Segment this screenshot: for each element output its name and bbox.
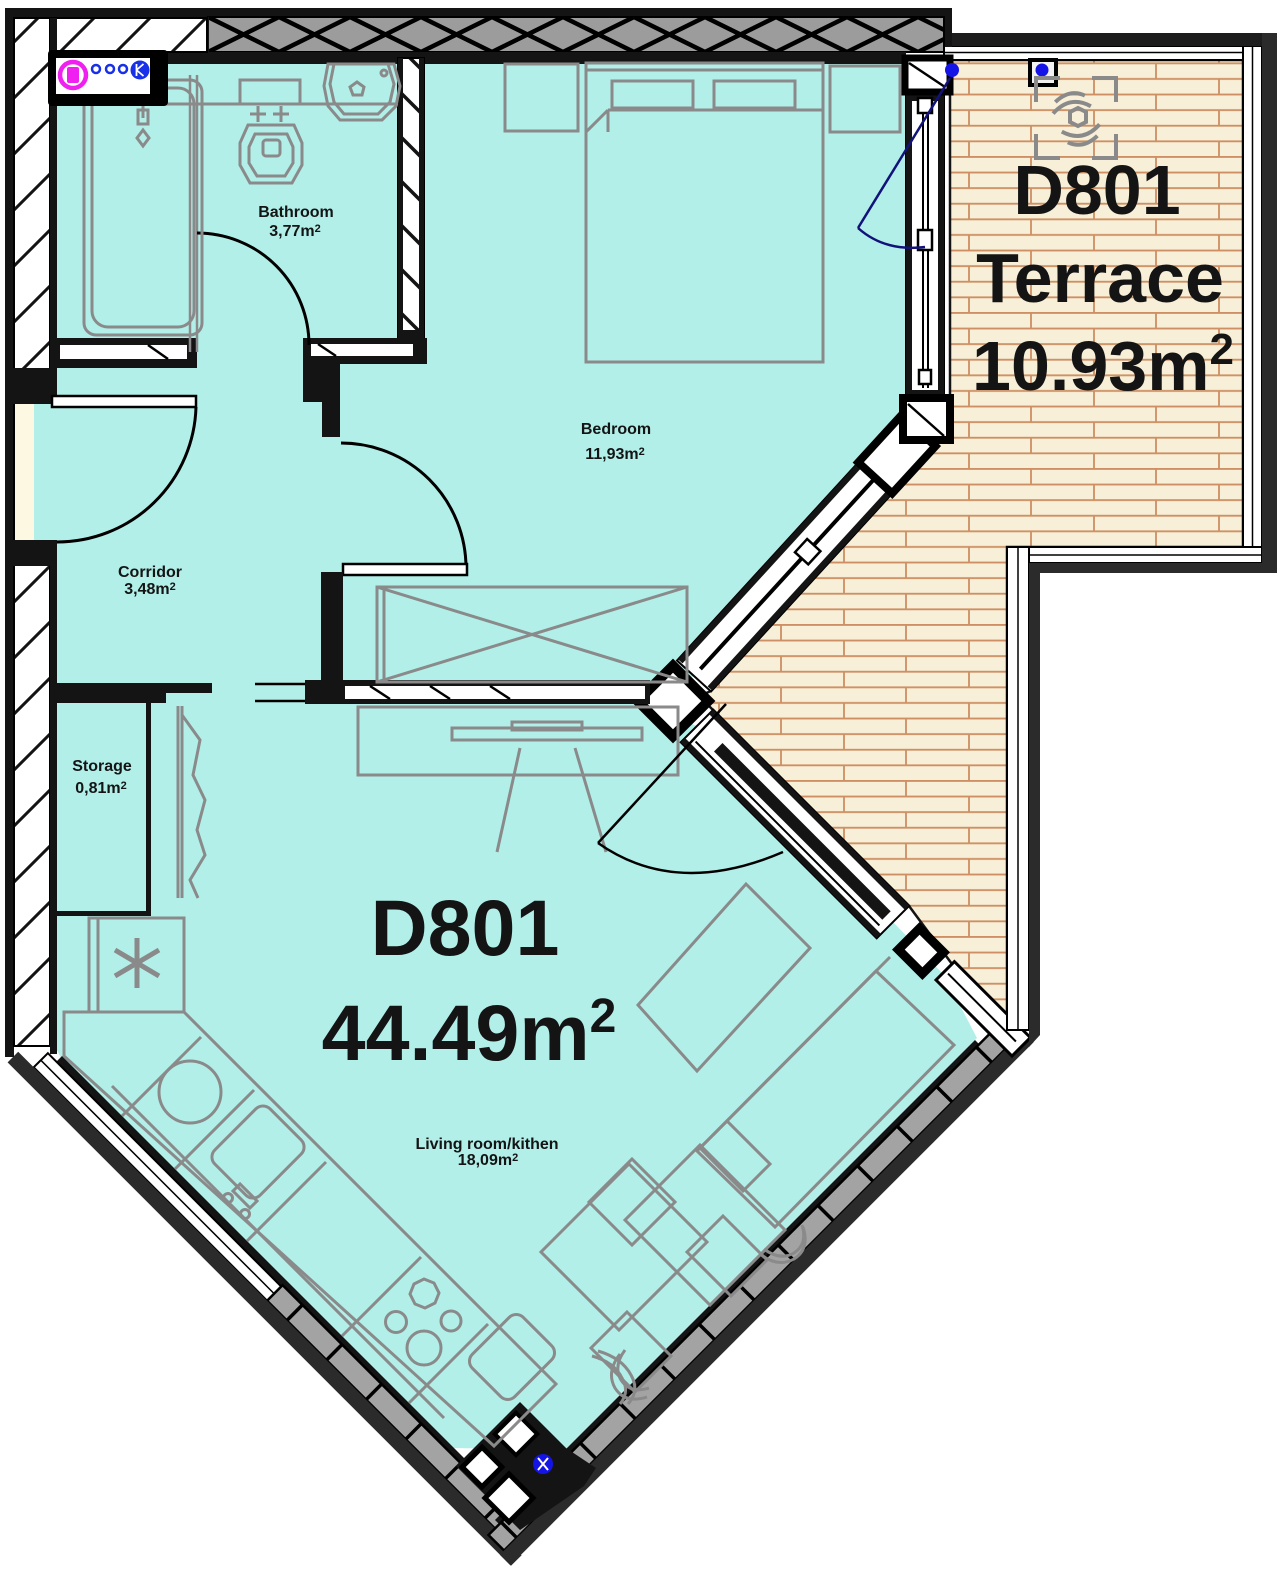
svg-text:D801: D801	[371, 883, 560, 972]
svg-text:3,48m2: 3,48m2	[124, 581, 176, 598]
svg-text:Terrace: Terrace	[976, 239, 1224, 317]
svg-text:18,09m2: 18,09m2	[458, 1152, 518, 1169]
svg-text:3,77m2: 3,77m2	[269, 223, 321, 240]
svg-text:11,93m2: 11,93m2	[585, 446, 645, 463]
svg-text:Corridor: Corridor	[118, 564, 182, 581]
svg-text:Bedroom: Bedroom	[581, 421, 651, 438]
svg-text:Bathroom: Bathroom	[258, 204, 334, 221]
svg-text:D801: D801	[1013, 151, 1180, 229]
svg-text:10.93m2: 10.93m2	[972, 325, 1234, 405]
svg-text:Storage: Storage	[72, 758, 132, 775]
svg-text:Living room/kithen: Living room/kithen	[415, 1136, 558, 1153]
svg-text:0,81m2: 0,81m2	[75, 780, 127, 797]
svg-text:44.49m2: 44.49m2	[322, 988, 617, 1077]
